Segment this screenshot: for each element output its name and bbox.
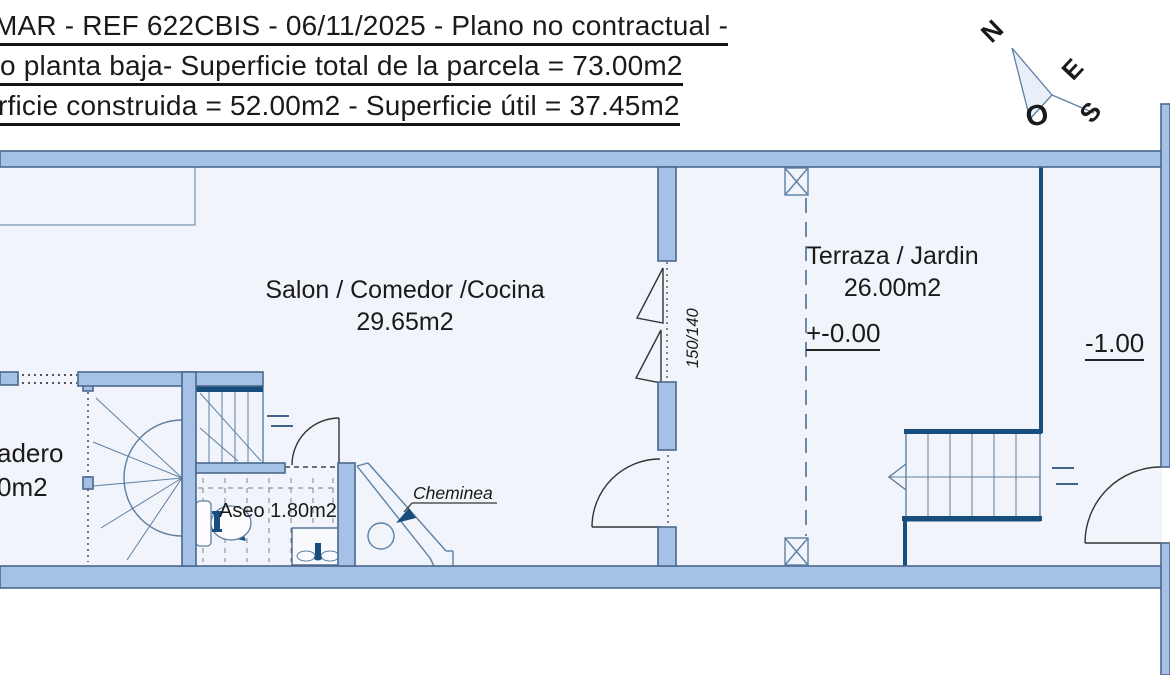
room-label-salon: Salon / Comedor /Cocina 29.65m2	[230, 274, 580, 338]
divider-wall-c	[658, 527, 676, 566]
title-line-3: rficie construida = 52.00m2 - Superficie…	[0, 90, 680, 126]
aseo-label: Aseo 1.80m2	[219, 500, 337, 523]
top-wall	[0, 151, 1170, 167]
terraza-level: +-0.00	[806, 318, 880, 351]
bottom-wall	[0, 566, 1163, 588]
salon-name: Salon / Comedor /Cocina	[230, 274, 580, 306]
right-wall-lower	[1161, 543, 1170, 675]
right-wall-upper	[1161, 104, 1170, 467]
exterior-level: -1.00	[1085, 328, 1144, 361]
lavadero-area: 0m2	[0, 472, 48, 503]
stair-side-wall	[182, 372, 196, 566]
salon-area: 29.65m2	[230, 306, 580, 338]
interior-background	[0, 167, 1162, 566]
aseo-top-wall	[196, 463, 285, 473]
left-wall-stub	[0, 372, 18, 385]
lavadero-name: adero	[0, 438, 64, 469]
aseo-right-wall	[338, 463, 355, 566]
room-label-terraza: Terraza / Jardin 26.00m2	[755, 240, 1030, 304]
terraza-area: 26.00m2	[755, 272, 1030, 304]
divider-wall-a	[658, 167, 676, 261]
floorplan-canvas: MAR - REF 622CBIS - 06/11/2025 - Plano n…	[0, 0, 1170, 675]
window-size-label: 150/140	[684, 308, 703, 368]
cheminea-label: Cheminea	[413, 483, 493, 504]
terraza-name: Terraza / Jardin	[755, 240, 1030, 272]
title-line-2: o planta baja- Superficie total de la pa…	[0, 50, 683, 86]
stair-top-wall	[78, 372, 263, 386]
divider-wall-b	[658, 382, 676, 450]
title-line-1: MAR - REF 622CBIS - 06/11/2025 - Plano n…	[0, 10, 728, 46]
